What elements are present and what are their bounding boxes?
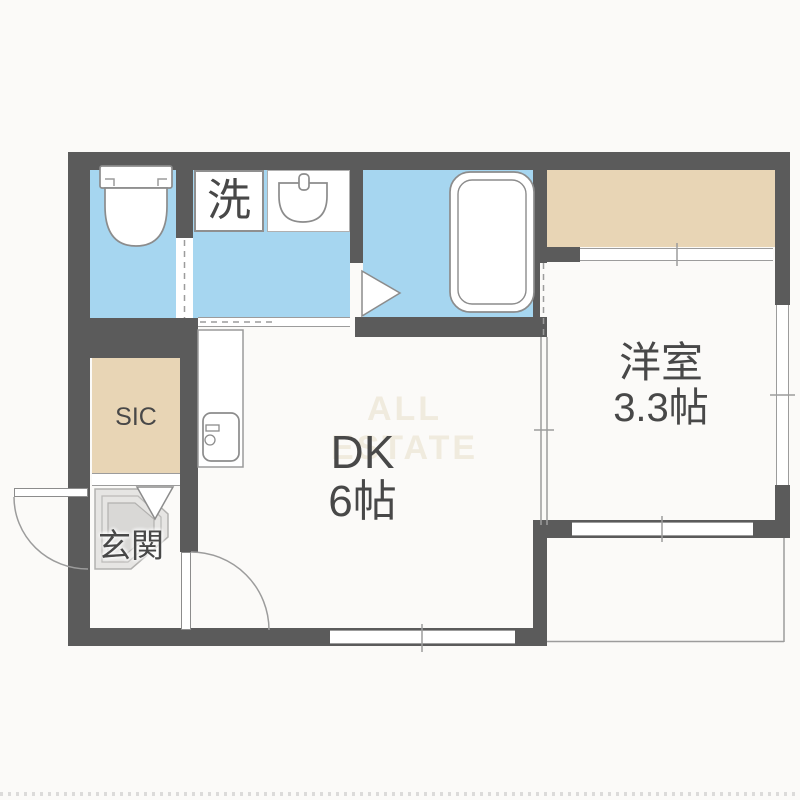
washbasin-box (267, 170, 350, 232)
entrance-label: 玄関 (76, 519, 186, 567)
window-dk-bottom (330, 630, 515, 644)
closet-sliding-door (580, 248, 773, 261)
sic-label: SIC (92, 403, 180, 432)
kitchen-sink-icon (203, 413, 239, 461)
toilet-door-opening (176, 238, 193, 318)
wall-bath-bottom (355, 317, 547, 337)
scan-noise-strip (0, 792, 800, 796)
bathroom (363, 168, 533, 317)
wall-center-lower (533, 520, 547, 646)
wall-plumbing-block (90, 318, 198, 358)
kitchen-faucet-icon (206, 425, 219, 431)
laundry-label: 洗 (194, 170, 264, 232)
floorplan-canvas: ALL ESTATE 洗 SIC 玄関 DK 6帖 洋室 3.3帖 (0, 0, 800, 800)
dk-room-label: DK 6帖 (270, 428, 455, 525)
sic-door-triangle (137, 487, 173, 519)
western-room-name: 洋室 (562, 340, 760, 386)
kitchen-drain-icon (205, 435, 215, 445)
wall-toilet-door-jamb (176, 168, 193, 238)
wall-right-upper (775, 152, 790, 305)
wall-center-upper (533, 152, 547, 263)
washroom-sliding-door (198, 317, 350, 327)
dk-door-arc (191, 552, 269, 630)
western-room-label: 洋室 3.3帖 (562, 340, 760, 430)
sic-door-band (92, 473, 180, 486)
toilet-room (90, 168, 176, 318)
wall-left (68, 152, 90, 646)
dk-room-size: 6帖 (270, 478, 455, 526)
kitchen-counter-icon (198, 330, 243, 467)
window-western-right (776, 305, 789, 485)
wall-washroom-bathroom (350, 152, 363, 263)
western-room-size: 3.3帖 (562, 386, 760, 430)
wall-closet-stub (547, 247, 580, 262)
entrance-door-leaf (14, 488, 88, 497)
dk-room-name: DK (270, 428, 455, 478)
window-western-bottom (572, 522, 753, 536)
closet (547, 168, 775, 247)
